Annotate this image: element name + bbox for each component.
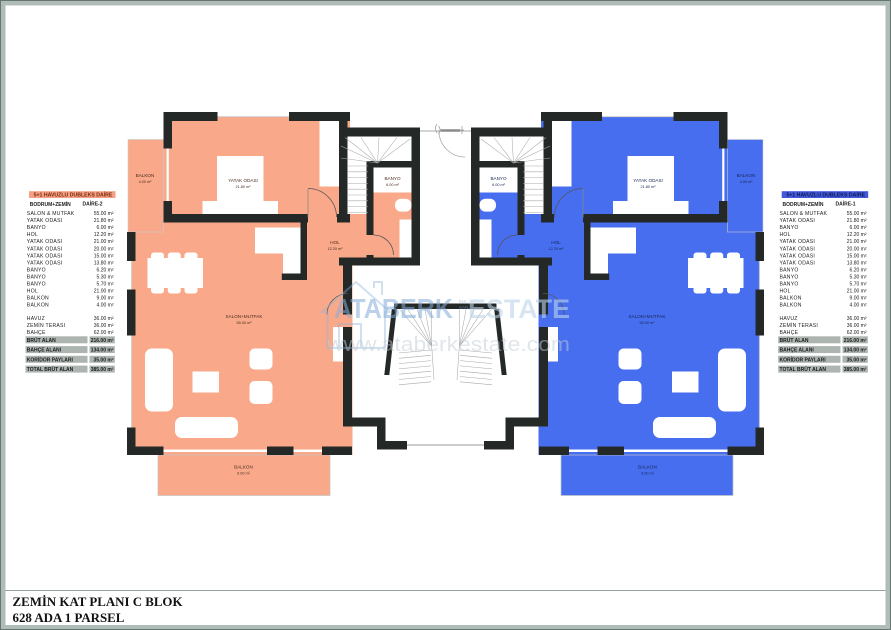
- svg-text:6.00 m²: 6.00 m²: [850, 225, 867, 231]
- svg-text:20.00 m²: 20.00 m²: [94, 246, 114, 252]
- svg-text:21.80 m²: 21.80 m²: [94, 218, 114, 224]
- svg-text:YATAK ODASI: YATAK ODASI: [27, 260, 63, 266]
- svg-text:YATAK ODASI: YATAK ODASI: [780, 253, 816, 259]
- svg-text:YATAK ODASI: YATAK ODASI: [780, 218, 816, 224]
- svg-text:BRÜT ALAN: BRÜT ALAN: [27, 337, 56, 344]
- svg-text:62.00 m²: 62.00 m²: [94, 330, 114, 336]
- svg-text:SAN.: SAN.: [459, 305, 470, 310]
- svg-text:YATAK ODASI: YATAK ODASI: [633, 178, 663, 183]
- svg-text:9.00 m²: 9.00 m²: [237, 472, 251, 476]
- svg-text:HOL: HOL: [780, 232, 791, 238]
- svg-text:35.00 m²: 35.00 m²: [846, 357, 866, 363]
- svg-text:4.00 m²: 4.00 m²: [139, 180, 153, 184]
- svg-text:385.00 m²: 385.00 m²: [91, 367, 114, 373]
- svg-text:12.20 m²: 12.20 m²: [847, 232, 867, 238]
- svg-text:YATAK ODASI: YATAK ODASI: [27, 239, 63, 245]
- svg-text:BANYO: BANYO: [27, 282, 46, 288]
- svg-text:4.00 m²: 4.00 m²: [850, 303, 867, 309]
- svg-text:BALKON: BALKON: [27, 303, 49, 309]
- svg-text:YATAK ODASI: YATAK ODASI: [27, 218, 63, 224]
- svg-text:BANYO: BANYO: [780, 275, 799, 281]
- svg-text:5.30 m²: 5.30 m²: [97, 275, 114, 281]
- svg-text:BALKON: BALKON: [780, 303, 802, 309]
- svg-text:6.00 m²: 6.00 m²: [492, 183, 506, 187]
- svg-text:SALON & MUTFAK: SALON & MUTFAK: [27, 211, 75, 217]
- svg-text:BRÜT ALAN: BRÜT ALAN: [780, 337, 809, 344]
- svg-text:BANYO: BANYO: [27, 225, 46, 231]
- svg-text:BANYO: BANYO: [780, 225, 799, 231]
- svg-text:216.00 m²: 216.00 m²: [91, 338, 114, 344]
- svg-text:SALON & MUTFAK: SALON & MUTFAK: [780, 211, 828, 217]
- svg-text:385.00 m²: 385.00 m²: [844, 367, 867, 373]
- svg-text:HOL: HOL: [27, 289, 38, 295]
- svg-text:36.00 m²: 36.00 m²: [94, 323, 114, 329]
- svg-text:BANYO: BANYO: [780, 282, 799, 288]
- svg-text:YATAK ODASI: YATAK ODASI: [228, 178, 258, 183]
- svg-text:12.20 m²: 12.20 m²: [328, 247, 344, 251]
- svg-text:BAHÇE: BAHÇE: [780, 330, 799, 336]
- svg-text:4.00 m²: 4.00 m²: [97, 303, 114, 309]
- svg-text:6.20 m²: 6.20 m²: [850, 267, 867, 273]
- svg-text:5+1 HAVUZLU DUBLEKS DAİRE: 5+1 HAVUZLU DUBLEKS DAİRE: [786, 192, 865, 199]
- svg-text:DAİRE-2: DAİRE-2: [83, 201, 103, 208]
- svg-text:YATAK ODASI: YATAK ODASI: [780, 246, 816, 252]
- svg-text:134.00 m²: 134.00 m²: [844, 348, 867, 354]
- svg-text:15.00 m²: 15.00 m²: [847, 253, 867, 259]
- svg-text:36.00 m²: 36.00 m²: [94, 316, 114, 322]
- svg-text:13.80 m²: 13.80 m²: [94, 260, 114, 266]
- svg-text:15.00 m²: 15.00 m²: [94, 253, 114, 259]
- svg-text:21.00 m²: 21.00 m²: [94, 239, 114, 245]
- svg-text:55.00 m²: 55.00 m²: [237, 321, 253, 325]
- svg-text:HOL: HOL: [551, 240, 561, 245]
- svg-text:BODRUM+ZEMİN: BODRUM+ZEMİN: [783, 201, 824, 208]
- svg-text:6.00 m²: 6.00 m²: [386, 183, 400, 187]
- svg-text:BANYO: BANYO: [384, 176, 401, 181]
- svg-text:YATAK ODASI: YATAK ODASI: [27, 246, 63, 252]
- svg-text:5.70 m²: 5.70 m²: [850, 282, 867, 288]
- svg-text:55.00 m²: 55.00 m²: [640, 321, 656, 325]
- svg-text:BAHÇE: BAHÇE: [27, 330, 46, 336]
- svg-text:DAİRE-1: DAİRE-1: [836, 201, 856, 208]
- svg-text:www.ataberkestate.com: www.ataberkestate.com: [326, 334, 570, 356]
- svg-text:9.00 m²: 9.00 m²: [850, 296, 867, 302]
- svg-text:5+1 HAVUZLU DUBLEKS DAİRE: 5+1 HAVUZLU DUBLEKS DAİRE: [34, 192, 113, 199]
- svg-text:BALKON: BALKON: [638, 465, 657, 470]
- svg-text:HOL: HOL: [27, 232, 38, 238]
- svg-text:ATABERK: ATABERK: [334, 293, 453, 324]
- svg-text:13.80 m²: 13.80 m²: [847, 260, 867, 266]
- svg-text:BANYO: BANYO: [490, 176, 507, 181]
- svg-text:6.00 m²: 6.00 m²: [97, 225, 114, 231]
- svg-text:21.00 m²: 21.00 m²: [847, 289, 867, 295]
- svg-text:ZEMİN KAT PLANI C BLOK: ZEMİN KAT PLANI C BLOK: [13, 595, 183, 609]
- svg-text:ESTATE: ESTATE: [468, 294, 570, 324]
- svg-text:BAHÇE ALANI: BAHÇE ALANI: [780, 348, 815, 354]
- svg-text:21.80 m²: 21.80 m²: [641, 185, 657, 189]
- svg-text:6.20 m²: 6.20 m²: [97, 267, 114, 273]
- svg-text:BANYO: BANYO: [780, 267, 799, 273]
- svg-text:BANYO: BANYO: [27, 275, 46, 281]
- svg-text:BAHÇE ALANI: BAHÇE ALANI: [27, 348, 62, 354]
- svg-text:5.70 m²: 5.70 m²: [97, 282, 114, 288]
- svg-text:BALKON: BALKON: [780, 296, 802, 302]
- svg-text:BODRUM+ZEMİN: BODRUM+ZEMİN: [30, 201, 71, 208]
- svg-text:5.30 m²: 5.30 m²: [850, 275, 867, 281]
- svg-text:20.00 m²: 20.00 m²: [847, 246, 867, 252]
- svg-text:BALKON: BALKON: [27, 296, 49, 302]
- svg-text:YATAK ODASI: YATAK ODASI: [780, 260, 816, 266]
- svg-text:BALKON: BALKON: [737, 173, 756, 178]
- svg-text:21.00 m²: 21.00 m²: [847, 239, 867, 245]
- svg-text:12.20 m²: 12.20 m²: [549, 247, 565, 251]
- svg-text:SALON+MUTFAK: SALON+MUTFAK: [629, 314, 667, 319]
- svg-text:55.00 m²: 55.00 m²: [847, 211, 867, 217]
- svg-text:YATAK ODASI: YATAK ODASI: [780, 239, 816, 245]
- svg-text:36.00 m²: 36.00 m²: [847, 323, 867, 329]
- svg-text:HAVUZ: HAVUZ: [780, 316, 798, 322]
- svg-text:TOTAL BRÜT ALAN: TOTAL BRÜT ALAN: [780, 366, 827, 373]
- svg-text:9.00 m²: 9.00 m²: [641, 472, 655, 476]
- svg-text:62.00 m²: 62.00 m²: [847, 330, 867, 336]
- svg-text:YATAK ODASI: YATAK ODASI: [27, 253, 63, 259]
- svg-text:KORİDOR PAYLARI: KORİDOR PAYLARI: [27, 356, 74, 363]
- svg-text:BALKON: BALKON: [234, 465, 253, 470]
- svg-text:21.80 m²: 21.80 m²: [236, 185, 252, 189]
- svg-text:36.00 m²: 36.00 m²: [847, 316, 867, 322]
- svg-text:HAVUZ: HAVUZ: [27, 316, 45, 322]
- svg-text:HOL: HOL: [780, 289, 791, 295]
- svg-text:SALON+MUTFAK: SALON+MUTFAK: [226, 314, 264, 319]
- svg-text:BALKON: BALKON: [136, 173, 155, 178]
- svg-text:216.00 m²: 216.00 m²: [844, 338, 867, 344]
- svg-text:BANYO: BANYO: [27, 267, 46, 273]
- svg-text:628 ADA 1 PARSEL: 628 ADA 1 PARSEL: [13, 611, 125, 625]
- svg-text:ZEMİN TERASI: ZEMİN TERASI: [27, 322, 66, 329]
- svg-text:12.20 m²: 12.20 m²: [94, 232, 114, 238]
- svg-text:134.00 m²: 134.00 m²: [91, 348, 114, 354]
- svg-text:TOTAL BRÜT ALAN: TOTAL BRÜT ALAN: [27, 366, 74, 373]
- svg-text:4.00 m²: 4.00 m²: [740, 180, 754, 184]
- svg-text:İNŞ.: İNŞ.: [459, 298, 468, 304]
- svg-text:KORİDOR PAYLARI: KORİDOR PAYLARI: [780, 356, 827, 363]
- svg-text:HOL: HOL: [330, 240, 340, 245]
- svg-text:ZEMİN TERASI: ZEMİN TERASI: [780, 322, 819, 329]
- svg-text:9.00 m²: 9.00 m²: [97, 296, 114, 302]
- svg-text:21.80 m²: 21.80 m²: [847, 218, 867, 224]
- svg-text:21.00 m²: 21.00 m²: [94, 289, 114, 295]
- svg-text:35.00 m²: 35.00 m²: [93, 357, 113, 363]
- svg-text:55.00 m²: 55.00 m²: [94, 211, 114, 217]
